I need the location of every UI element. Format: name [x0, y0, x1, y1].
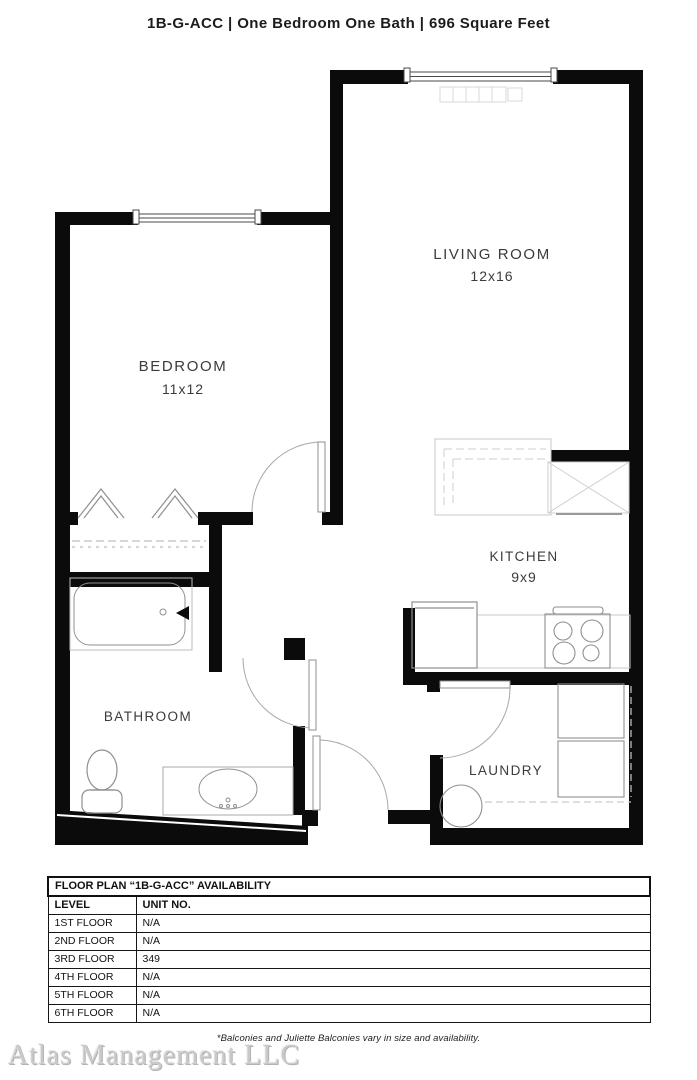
wall-bedroom-south-b	[198, 512, 253, 525]
kitchen-label: KITCHEN	[489, 549, 558, 564]
laundry-label: LAUNDRY	[469, 763, 543, 778]
closet-shelf	[72, 541, 206, 547]
living-room-label: LIVING ROOM	[433, 246, 551, 263]
entry-door-arc	[318, 740, 388, 810]
availability-table: FLOOR PLAN “1B-G-ACC” AVAILABILITY LEVEL…	[47, 876, 651, 1023]
unit-cell: N/A	[136, 915, 650, 933]
column-header-level: LEVEL	[48, 896, 136, 915]
living-room-dims: 12x16	[470, 268, 513, 284]
wall-bottom-right	[430, 828, 643, 845]
table-row: 5TH FLOOR N/A	[48, 987, 650, 1005]
entry-door	[313, 736, 388, 810]
wall-bathroom-ne-stub	[284, 638, 305, 660]
water-heater	[440, 785, 482, 827]
baseboard-heater	[440, 87, 522, 102]
vanity-sink	[163, 767, 293, 815]
unit-cell: 349	[136, 951, 650, 969]
toilet	[82, 750, 122, 813]
unit-cell: N/A	[136, 969, 650, 987]
table-row: 6TH FLOOR N/A	[48, 1005, 650, 1023]
kitchen-dims: 9x9	[511, 569, 537, 585]
cabinet-x-box	[548, 462, 629, 514]
availability-table-title-row: FLOOR PLAN “1B-G-ACC” AVAILABILITY	[48, 877, 650, 896]
refrigerator	[412, 602, 477, 668]
bedroom-label: BEDROOM	[139, 358, 228, 375]
bedroom-door-arc	[252, 442, 322, 512]
bedroom-dims: 11x12	[162, 381, 204, 397]
entry-door-leaf	[313, 736, 320, 810]
kitchen-island	[435, 439, 551, 515]
tub-faucet	[176, 606, 189, 620]
wall-bedroom-door-jamb	[322, 512, 343, 525]
floor-plan-drawing: LIVING ROOM 12x16 BEDROOM 11x12 KITCHEN …	[0, 0, 697, 862]
wall-entry-jamb-right	[388, 810, 432, 824]
bathroom-label: BATHROOM	[104, 709, 192, 724]
bedroom-door-leaf	[318, 442, 325, 512]
watermark: Atlas Management LLC	[8, 1040, 300, 1072]
wall-kitchen-west	[403, 608, 415, 674]
laundry-door-arc	[440, 688, 510, 758]
availability-table-header-row: LEVEL UNIT NO.	[48, 896, 650, 915]
level-cell: 1ST FLOOR	[48, 915, 136, 933]
level-cell: 3RD FLOOR	[48, 951, 136, 969]
bedroom-window	[133, 210, 261, 224]
living-room-window	[404, 68, 557, 82]
wall-divider	[330, 70, 343, 525]
laundry-door	[440, 681, 510, 758]
walls	[55, 70, 643, 845]
wall-closet-east	[209, 512, 222, 672]
availability-table-title: FLOOR PLAN “1B-G-ACC” AVAILABILITY	[48, 877, 650, 896]
column-header-unit-no: UNIT NO.	[136, 896, 650, 915]
laundry-door-leaf	[440, 681, 510, 688]
closet-hangers	[78, 489, 198, 518]
level-cell: 2ND FLOOR	[48, 933, 136, 951]
wall-entry-jamb-left	[302, 810, 318, 826]
wall-left	[55, 212, 70, 845]
stove	[545, 607, 610, 668]
table-row: 1ST FLOOR N/A	[48, 915, 650, 933]
wall-laundry-door-jamb	[427, 672, 440, 692]
wall-bedroom-south-a	[55, 512, 78, 525]
unit-cell: N/A	[136, 987, 650, 1005]
bathroom-door-leaf	[309, 660, 316, 730]
washer	[558, 684, 624, 738]
dryer	[558, 741, 624, 797]
bathroom-door-arc	[243, 658, 313, 728]
floor-plan-page: 1B-G-ACC | One Bedroom One Bath | 696 Sq…	[0, 0, 697, 1080]
table-row: 3RD FLOOR 349	[48, 951, 650, 969]
level-cell: 4TH FLOOR	[48, 969, 136, 987]
counter	[477, 615, 630, 668]
wall-bathroom-top	[55, 572, 209, 587]
bathtub	[70, 578, 192, 650]
table-row: 2ND FLOOR N/A	[48, 933, 650, 951]
wall-bathroom-east	[293, 726, 305, 815]
bedroom-door	[252, 442, 325, 512]
wall-kitchen-north-stub	[551, 450, 643, 462]
table-row: 4TH FLOOR N/A	[48, 969, 650, 987]
level-cell: 5TH FLOOR	[48, 987, 136, 1005]
unit-cell: N/A	[136, 933, 650, 951]
level-cell: 6TH FLOOR	[48, 1005, 136, 1023]
bathroom-door	[243, 658, 316, 730]
unit-cell: N/A	[136, 1005, 650, 1023]
